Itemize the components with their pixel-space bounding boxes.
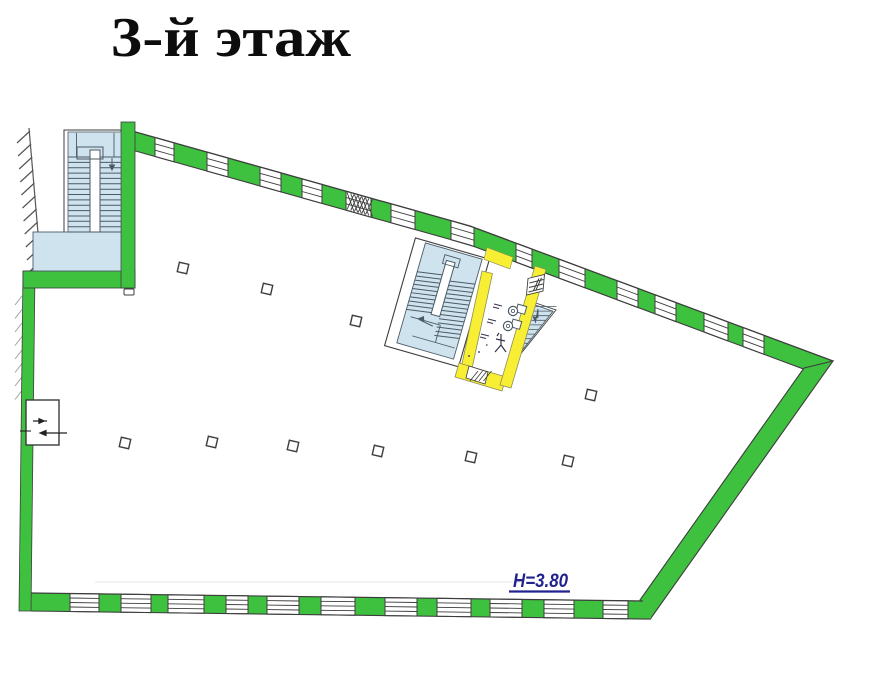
svg-text:Н=3.80: Н=3.80 [513,571,568,592]
svg-text:3-й этаж: 3-й этаж [111,7,351,69]
